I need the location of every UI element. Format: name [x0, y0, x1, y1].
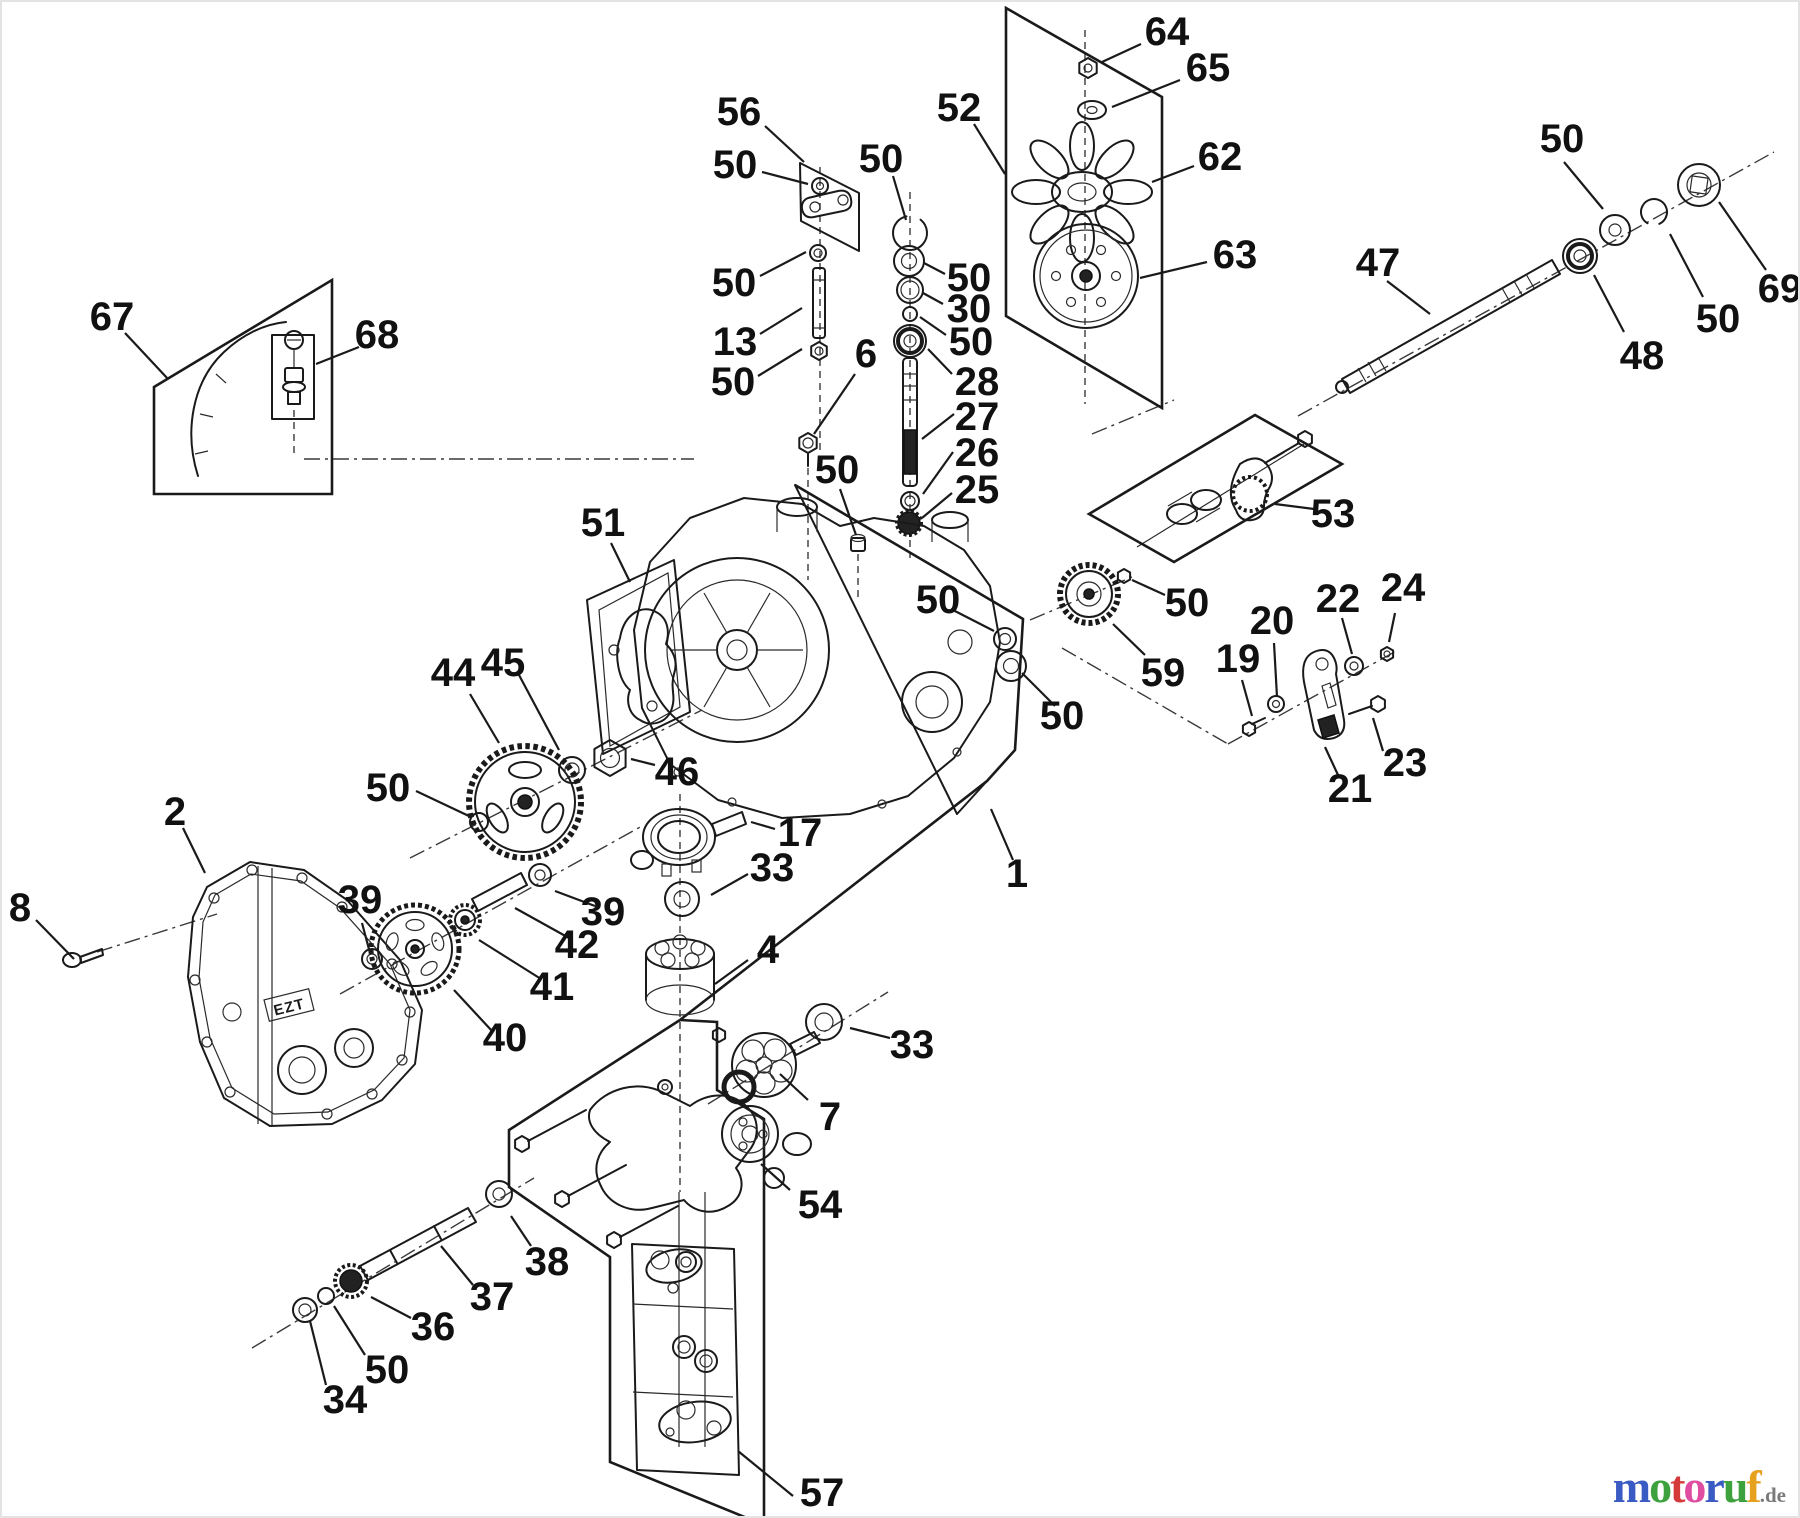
callout-label-41: 41 — [530, 965, 575, 1009]
leader-line — [334, 1306, 365, 1355]
leader-line — [519, 675, 559, 750]
leader-line — [1132, 580, 1165, 595]
leader-line — [760, 252, 806, 276]
callout-label-25: 25 — [955, 468, 1000, 512]
callout-label-50: 50 — [711, 360, 756, 404]
nut-50 — [811, 342, 827, 360]
leader-line — [183, 828, 205, 873]
leader-line — [1389, 613, 1395, 642]
pinion-41 — [450, 905, 480, 935]
cover-group: EZT — [63, 862, 551, 1126]
panel-plug-68 — [272, 335, 314, 419]
leader-line — [974, 124, 1005, 174]
leader-line — [1373, 718, 1383, 751]
nut-64 — [1079, 58, 1096, 78]
callout-label-22: 22 — [1316, 577, 1361, 621]
leader-line — [850, 1028, 890, 1038]
callout-label-4: 4 — [757, 928, 780, 972]
leader-line — [924, 263, 945, 274]
pump-assembly-54 — [515, 1028, 811, 1248]
watermark-letter: o — [1683, 1461, 1704, 1512]
callout-label-34: 34 — [323, 1378, 368, 1422]
callout-label-51: 51 — [581, 501, 626, 545]
callout-label-6: 6 — [855, 332, 877, 376]
callout-label-21: 21 — [1328, 767, 1373, 811]
cover-2: EZT — [188, 862, 422, 1126]
bolt-23-head — [1371, 696, 1385, 712]
leader-line — [1242, 680, 1252, 716]
callout-label-45: 45 — [481, 641, 526, 685]
callout-label-47: 47 — [1356, 241, 1401, 285]
snap-ring-50 — [1636, 194, 1672, 230]
callout-label-50: 50 — [1040, 694, 1085, 738]
seal-33 — [665, 882, 699, 916]
callout-label-39: 39 — [338, 878, 383, 922]
callout-label-52: 52 — [937, 86, 982, 130]
leader-line — [893, 176, 906, 220]
panel-housing-boundary — [680, 485, 1023, 1020]
watermark-suffix: .de — [1760, 1483, 1786, 1507]
callout-label-19: 19 — [1216, 637, 1261, 681]
leader-line — [1594, 275, 1624, 332]
callout-label-13: 13 — [713, 320, 758, 364]
leader-line — [923, 452, 953, 494]
leader-line — [765, 126, 804, 162]
watermark-letter: u — [1723, 1461, 1747, 1512]
leader-line — [758, 349, 802, 376]
bolt-8 — [63, 953, 81, 967]
washer-34 — [293, 1298, 317, 1322]
callout-label-50: 50 — [916, 578, 961, 622]
pulley-63 — [1034, 224, 1138, 328]
callout-label-8: 8 — [9, 886, 31, 930]
callout-label-57: 57 — [800, 1471, 845, 1515]
trunnion-arm-group — [1243, 647, 1393, 739]
watermark-letter: t — [1670, 1461, 1683, 1512]
leader-line — [1564, 162, 1603, 209]
shaft-37 — [360, 1208, 476, 1280]
callout-label-62: 62 — [1198, 135, 1243, 179]
leader-line — [362, 923, 370, 953]
oil-tube-group — [191, 322, 305, 476]
leader-line — [416, 791, 471, 817]
callout-label-67: 67 — [90, 295, 135, 339]
callout-label-48: 48 — [1620, 334, 1665, 378]
o-ring-50 — [318, 1288, 334, 1304]
callout-label-53: 53 — [1311, 492, 1356, 536]
seal-kit-57 — [643, 1245, 733, 1447]
cover-marking: EZT — [272, 995, 307, 1019]
callout-label-68: 68 — [355, 313, 400, 357]
callout-label-44: 44 — [431, 651, 476, 695]
seal-50-lower — [996, 651, 1026, 681]
washer-65 — [1078, 101, 1106, 119]
callout-label-50: 50 — [859, 137, 904, 181]
callout-label-50: 50 — [1540, 117, 1585, 161]
callout-label-65: 65 — [1186, 46, 1231, 90]
diagram-canvas: EZT — [2, 2, 1800, 1518]
callout-layer: 5650501350652646562635050305028272625504… — [9, 10, 1800, 1515]
callout-label-23: 23 — [1383, 741, 1428, 785]
nut — [713, 1028, 725, 1042]
watermark-letter: m — [1613, 1461, 1649, 1512]
gear-44 — [469, 746, 581, 858]
leader-line — [1387, 281, 1430, 314]
cylinder-53 — [1167, 504, 1197, 524]
callout-label-24: 24 — [1381, 566, 1426, 610]
seal-33-lower — [806, 1004, 842, 1040]
callout-label-59: 59 — [1141, 651, 1186, 695]
fan-62 — [1012, 122, 1152, 262]
callout-label-50: 50 — [365, 1348, 410, 1392]
motoruf-watermark: motoruf.de — [1613, 1464, 1786, 1510]
leader-line — [611, 543, 630, 582]
gear-40 — [371, 905, 459, 993]
callout-label-1: 1 — [1006, 852, 1028, 896]
callout-label-69: 69 — [1758, 267, 1800, 311]
leader-line — [760, 308, 802, 334]
leader-line — [1670, 234, 1703, 297]
washer-22 — [1345, 657, 1363, 675]
callout-label-50: 50 — [713, 143, 758, 187]
callout-label-20: 20 — [1250, 599, 1295, 643]
leader-line — [441, 1246, 473, 1285]
leader-line — [751, 822, 775, 829]
callout-label-64: 64 — [1145, 10, 1190, 54]
washer-39 — [529, 864, 551, 886]
panel-housing-boundary-left — [795, 485, 987, 814]
motor-block-7 — [724, 1032, 820, 1102]
callout-label-39: 39 — [581, 890, 626, 934]
callout-label-56: 56 — [717, 90, 762, 134]
callout-label-50: 50 — [366, 766, 411, 810]
leader-line — [1719, 202, 1766, 270]
leader-line — [923, 293, 943, 304]
callout-label-50: 50 — [712, 261, 757, 305]
gear-59-group — [1060, 565, 1130, 623]
reduction-gear-group — [469, 740, 626, 858]
callout-label-2: 2 — [164, 790, 186, 834]
leader-line — [711, 874, 748, 895]
leader-line — [470, 694, 499, 743]
callout-label-50: 50 — [815, 448, 860, 492]
washer-20 — [1268, 696, 1284, 712]
leader-line — [1152, 166, 1194, 182]
bolt-head — [515, 1136, 529, 1152]
callout-label-63: 63 — [1213, 233, 1258, 277]
leader-line — [125, 333, 168, 379]
cup-seal — [695, 1350, 717, 1372]
leader-line — [1102, 44, 1141, 62]
leader-line — [1342, 618, 1352, 654]
callout-label-7: 7 — [819, 1095, 841, 1139]
leader-line — [922, 414, 954, 439]
center-lines — [97, 30, 1774, 1447]
watermark-letter: f — [1746, 1461, 1759, 1512]
leader-line — [738, 1451, 793, 1496]
bolt-head — [555, 1191, 569, 1207]
callout-label-46: 46 — [655, 750, 700, 794]
ring-50 — [810, 245, 826, 261]
cup-seal — [673, 1336, 695, 1358]
leader-line — [1275, 504, 1314, 509]
watermark-letter: o — [1649, 1461, 1670, 1512]
callout-label-50: 50 — [949, 320, 994, 364]
leader-line — [631, 759, 655, 765]
leader-line — [1112, 80, 1180, 107]
leader-line — [316, 347, 359, 364]
leader-line — [1274, 643, 1277, 697]
leader-line — [310, 1321, 326, 1385]
diagram-page: EZT — [0, 0, 1800, 1518]
callout-label-54: 54 — [798, 1183, 843, 1227]
leader-line — [36, 920, 74, 959]
vent-plug-68 — [283, 331, 305, 404]
seal-50-upper — [994, 628, 1016, 650]
callout-label-38: 38 — [525, 1240, 570, 1284]
leader-line — [371, 1297, 411, 1318]
callout-label-37: 37 — [470, 1275, 515, 1319]
callout-label-33: 33 — [750, 846, 795, 890]
callout-label-33: 33 — [890, 1023, 935, 1067]
watermark-letter: r — [1704, 1461, 1722, 1512]
callout-label-36: 36 — [411, 1305, 456, 1349]
callout-label-40: 40 — [483, 1016, 528, 1060]
panel-kit-53 — [1089, 415, 1342, 562]
center-section-17 — [631, 809, 746, 876]
leader-line — [1140, 262, 1207, 278]
kit-53 — [1167, 431, 1312, 524]
bolt-head — [607, 1232, 621, 1248]
callout-label-50: 50 — [1165, 581, 1210, 625]
callout-label-50: 50 — [1696, 297, 1741, 341]
